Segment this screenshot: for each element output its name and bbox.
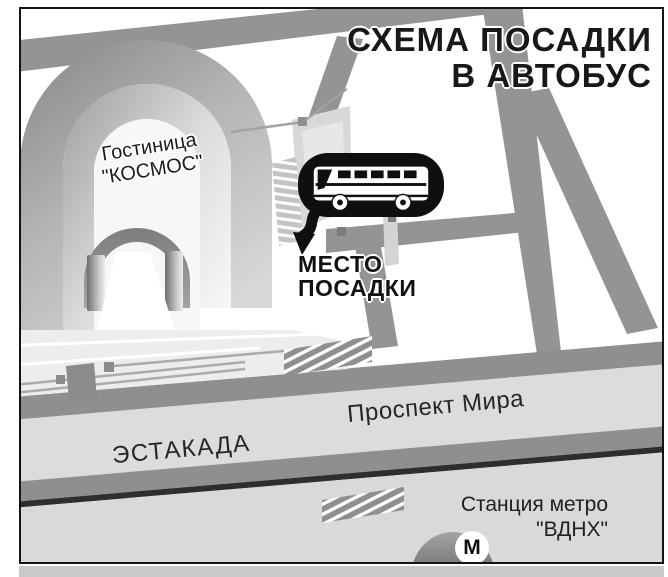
metro-station-label: Станция метро "ВДНХ": [398, 492, 608, 542]
title-line-2: В АВТОБУС: [272, 58, 652, 94]
bottom-margin-strip: [19, 566, 664, 577]
boarding-point-label: МЕСТО ПОСАДКИ: [298, 252, 416, 300]
map-frame: СХЕМА ПОСАДКИ В АВТОБУС Гостиница "КОСМО…: [19, 7, 664, 564]
bus-boarding-scheme-map: СХЕМА ПОСАДКИ В АВТОБУС Гостиница "КОСМО…: [0, 0, 668, 577]
title-line-1: СХЕМА ПОСАДКИ: [272, 22, 652, 58]
metro-m-icon: М: [455, 531, 489, 564]
page-title: СХЕМА ПОСАДКИ В АВТОБУС: [272, 22, 652, 94]
